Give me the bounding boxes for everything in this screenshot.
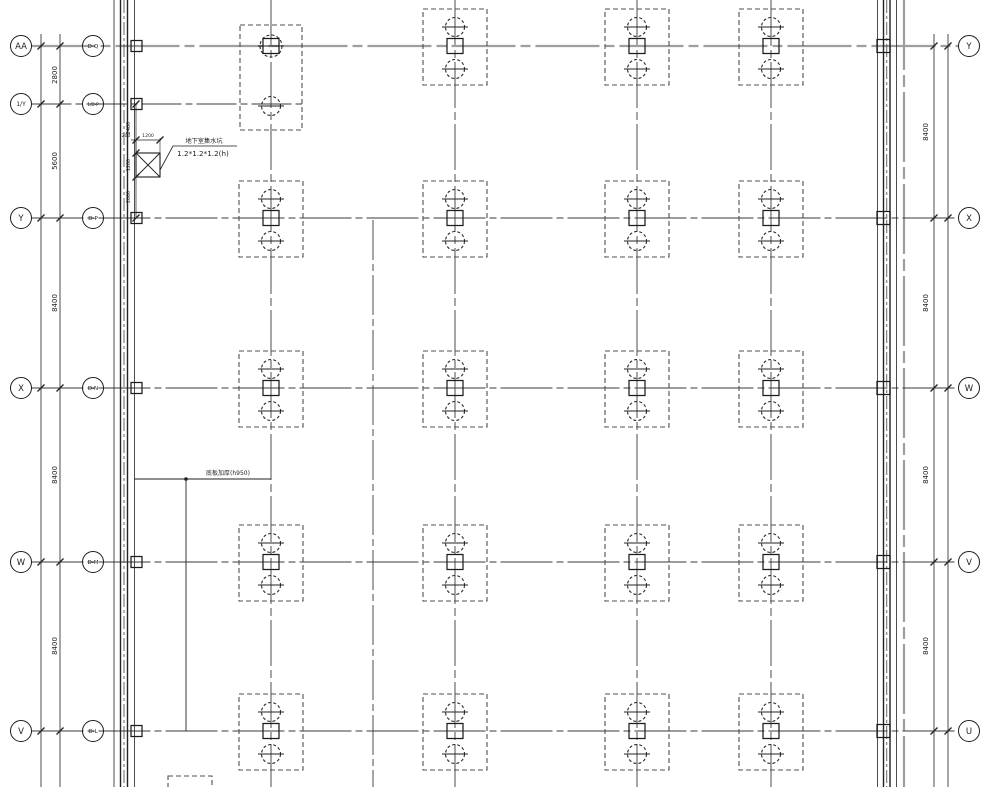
grid-bubble-right: X — [959, 208, 980, 229]
grid-bubbles-layer: AAD-QY1/Y1/D-PYD-PXXD-NWWD-MVVD-LU — [11, 36, 980, 742]
slab-note-text: 底板加厚(h950) — [206, 469, 250, 477]
grid-bubble-label: D-N — [88, 386, 98, 392]
grid-bubble-left: Y — [11, 208, 32, 229]
dim-label-right: 8400 — [922, 466, 930, 484]
dim-label-left: 2800 — [51, 66, 59, 84]
grid-bubble-left: X — [11, 378, 32, 399]
grid-bubble-label: X — [966, 214, 972, 224]
dim-label-left: 8400 — [51, 294, 59, 312]
grid-bubble-label: Y — [965, 42, 972, 52]
grid-bubble-label: V — [18, 727, 24, 737]
pile-cap-partial — [168, 776, 212, 787]
slab-note-point — [184, 477, 188, 481]
grid-bubble-right: V — [959, 552, 980, 573]
grid-bubble-left: W — [11, 552, 32, 573]
grid-bubble-label: V — [966, 558, 972, 568]
annotations-layer: 2001200240012002000地下室集水坑1.2*1.2*1.2(h)底… — [122, 101, 271, 732]
dimensions-layer: 280056008400840084008400840084008400 — [38, 34, 952, 787]
sump-vchain-label: 2400 — [126, 122, 132, 134]
sump-pit-annotation: 2001200240012002000地下室集水坑1.2*1.2*1.2(h) — [122, 101, 237, 222]
sump-vchain-label: 1200 — [126, 159, 132, 171]
grid-bubble-label: D-L — [88, 729, 98, 735]
dim-label-right: 8400 — [922, 294, 930, 312]
dim-label-left: 5600 — [51, 152, 59, 170]
grid-bubble-label: D-M — [88, 560, 99, 566]
dim-label-left: 8400 — [51, 466, 59, 484]
sump-dim-width: 1200 — [142, 133, 154, 139]
grid-bubble-right: U — [959, 721, 980, 742]
pile-caps-layer — [168, 9, 803, 787]
grid-bubble-left: AA — [11, 36, 32, 57]
sump-label-line1: 地下室集水坑 — [185, 137, 222, 145]
sump-vchain-label: 2000 — [126, 191, 132, 203]
dim-label-left: 8400 — [51, 637, 59, 655]
cad-drawing-viewport: 280056008400840084008400840084008400AAD-… — [0, 0, 1000, 787]
sump-label-line2: 1.2*1.2*1.2(h) — [177, 149, 229, 158]
grid-lines-layer — [32, 0, 959, 787]
slab-note-annotation: 底板加厚(h950) — [134, 469, 271, 731]
grid-bubble-right: W — [959, 378, 980, 399]
dim-label-right: 8400 — [922, 123, 930, 141]
grid-bubble-label: W — [17, 558, 26, 568]
grid-bubble-label: AA — [15, 42, 27, 52]
grid-bubble-label: U — [966, 727, 972, 737]
grid-bubble-label: 1/Y — [16, 101, 26, 108]
grid-bubble-label: W — [965, 384, 974, 394]
foundation-plan-drawing: 280056008400840084008400840084008400AAD-… — [0, 0, 1000, 787]
grid-bubble-label: X — [18, 384, 24, 394]
grid-bubble-label: D-P — [88, 216, 98, 222]
grid-bubble-left: V — [11, 721, 32, 742]
grid-bubble-label: D-Q — [88, 44, 99, 50]
grid-bubble-label: Y — [17, 214, 24, 224]
grid-bubble-left: 1/Y — [11, 94, 32, 115]
grid-bubble-right: Y — [959, 36, 980, 57]
grid-bubble-label: 1/D-P — [87, 102, 99, 107]
dim-label-right: 8400 — [922, 637, 930, 655]
